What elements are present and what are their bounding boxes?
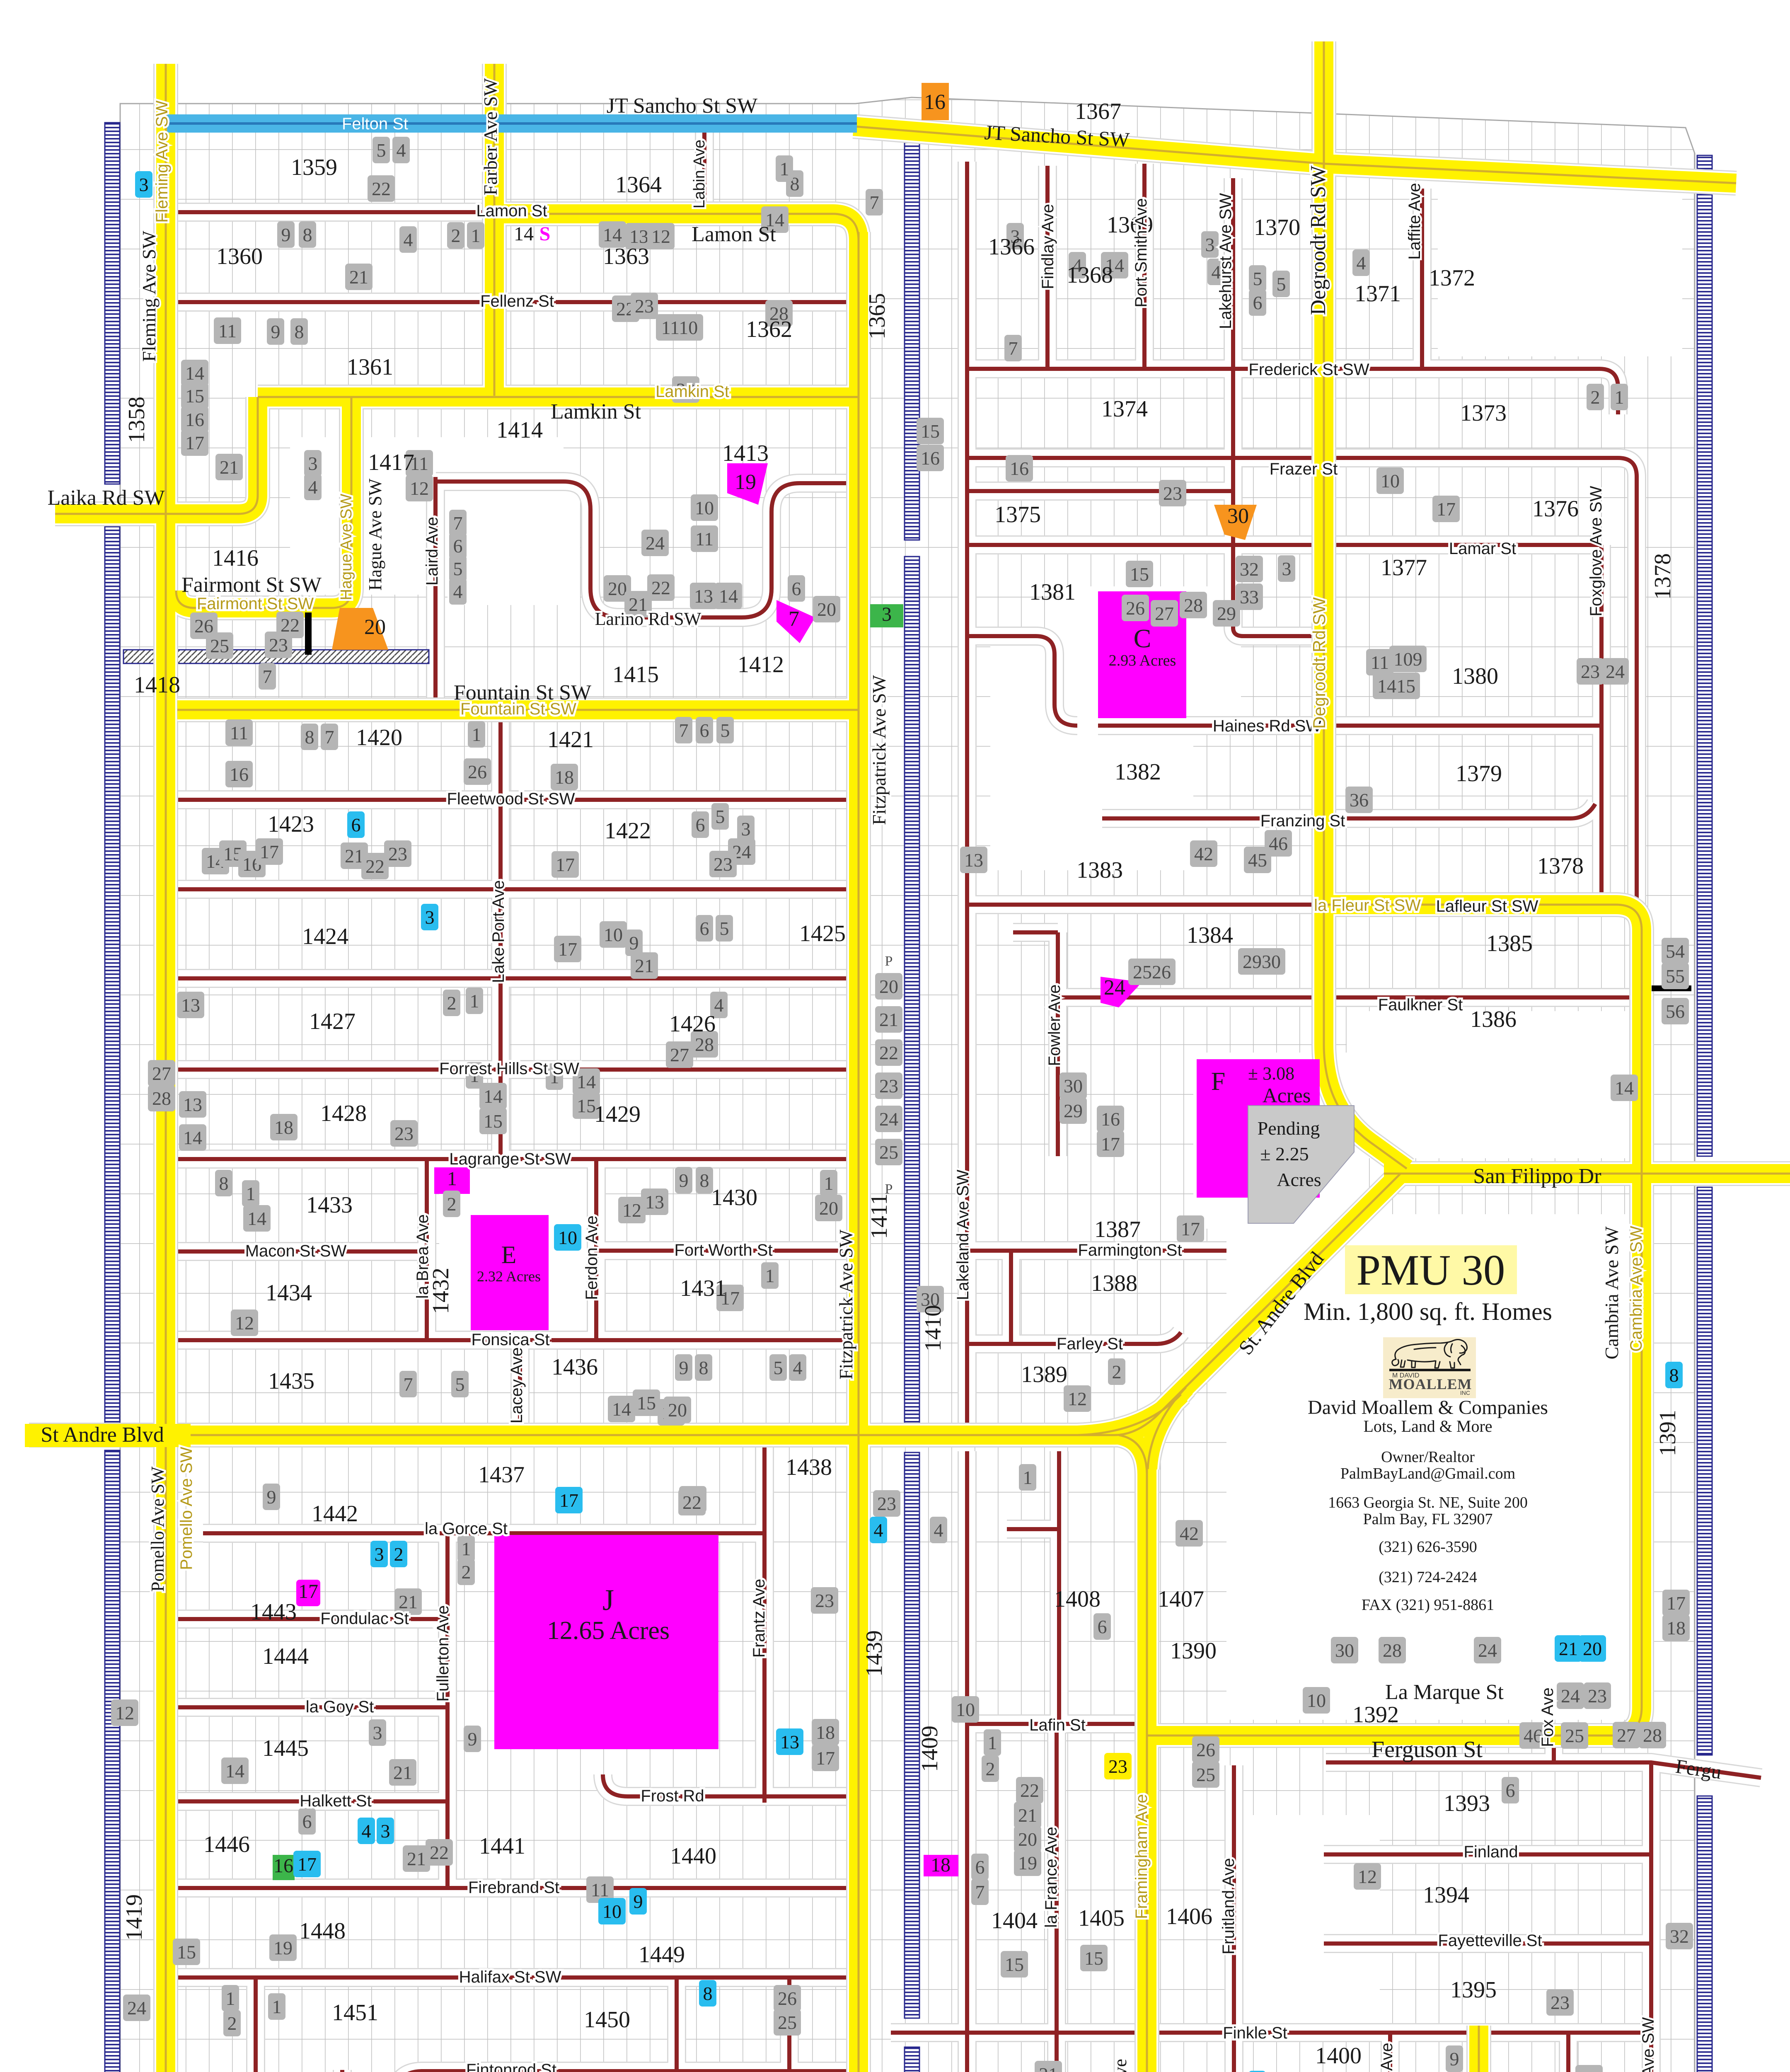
svg-text:2: 2	[1591, 387, 1600, 408]
svg-text:1382: 1382	[1115, 759, 1161, 785]
svg-text:15: 15	[577, 1095, 596, 1116]
svg-text:Fullerton Ave: Fullerton Ave	[434, 1605, 452, 1702]
svg-text:21: 21	[1580, 2068, 1599, 2072]
svg-text:30: 30	[1227, 504, 1249, 528]
svg-text:1437: 1437	[478, 1462, 525, 1488]
svg-text:Fondulac St: Fondulac St	[320, 1610, 409, 1628]
svg-text:6: 6	[975, 1857, 985, 1878]
svg-text:1432: 1432	[428, 1268, 454, 1314]
svg-text:4: 4	[874, 1520, 883, 1541]
svg-text:la Brea Ave: la Brea Ave	[414, 1214, 432, 1299]
svg-text:6: 6	[792, 578, 801, 599]
svg-text:14: 14	[1615, 1077, 1634, 1099]
svg-text:Laird Ave: Laird Ave	[423, 517, 441, 586]
svg-text:1413: 1413	[722, 441, 769, 466]
svg-text:JT Sancho St SW: JT Sancho St SW	[607, 94, 758, 118]
svg-text:12.65 Acres: 12.65 Acres	[547, 1617, 670, 1645]
svg-text:1: 1	[226, 1988, 235, 2009]
svg-text:14: 14	[484, 1086, 503, 1107]
svg-text:11: 11	[1371, 652, 1389, 673]
svg-text:16: 16	[1010, 458, 1029, 479]
svg-text:1391: 1391	[1655, 1410, 1681, 1456]
svg-text:45: 45	[1248, 850, 1267, 871]
svg-text:10: 10	[558, 1227, 577, 1248]
svg-text:1420: 1420	[356, 725, 402, 750]
svg-text:MOALLEM: MOALLEM	[1389, 1376, 1472, 1392]
svg-text:22: 22	[430, 1842, 449, 1863]
svg-text:17: 17	[559, 1490, 578, 1511]
svg-text:1362: 1362	[746, 317, 792, 342]
svg-text:1: 1	[1615, 387, 1624, 408]
svg-text:Fort Worth St: Fort Worth St	[674, 1241, 772, 1259]
svg-text:1364: 1364	[615, 172, 662, 198]
svg-text:1386: 1386	[1470, 1007, 1517, 1032]
svg-text:Fairmont St SW: Fairmont St SW	[197, 595, 314, 613]
svg-text:16: 16	[230, 764, 249, 785]
svg-text:23: 23	[879, 1075, 898, 1097]
svg-text:3: 3	[1205, 234, 1215, 255]
svg-text:1389: 1389	[1021, 1362, 1067, 1387]
svg-text:Toledo Ave SW: Toledo Ave SW	[1639, 2017, 1657, 2072]
svg-text:20: 20	[1583, 1638, 1602, 1659]
svg-text:21: 21	[635, 955, 654, 976]
svg-text:32: 32	[1240, 559, 1259, 580]
svg-text:3: 3	[381, 1820, 390, 1842]
svg-text:1663 Georgia St. NE, Suite 200: 1663 Georgia St. NE, Suite 200	[1328, 1494, 1528, 1511]
svg-text:(321) 626-3590: (321) 626-3590	[1379, 1538, 1477, 1556]
svg-text:12: 12	[410, 478, 429, 499]
svg-text:1381: 1381	[1029, 579, 1076, 605]
svg-text:6: 6	[1098, 1616, 1107, 1637]
svg-text:Lots, Land & More: Lots, Land & More	[1363, 1417, 1492, 1435]
svg-text:9: 9	[1450, 2048, 1459, 2070]
svg-text:9: 9	[679, 1357, 689, 1378]
svg-text:1: 1	[765, 1265, 775, 1286]
svg-text:2.32 Acres: 2.32 Acres	[477, 1268, 541, 1285]
svg-text:1439: 1439	[861, 1630, 887, 1677]
svg-text:22: 22	[365, 856, 385, 877]
svg-text:1: 1	[824, 1173, 834, 1194]
svg-text:24: 24	[879, 1109, 898, 1130]
svg-text:San Filippo Dr: San Filippo Dr	[1473, 1164, 1601, 1188]
svg-text:6: 6	[700, 918, 709, 939]
svg-text:Halifax St SW: Halifax St SW	[459, 1968, 561, 1986]
svg-text:13: 13	[645, 1191, 664, 1213]
svg-text:Lamkin St: Lamkin St	[551, 400, 641, 424]
svg-text:1419: 1419	[121, 1894, 147, 1941]
svg-text:1424: 1424	[302, 924, 348, 949]
svg-text:Frederick St SW: Frederick St SW	[1248, 361, 1369, 379]
svg-text:12: 12	[622, 1200, 641, 1221]
svg-text:Lamon St: Lamon St	[692, 223, 776, 246]
svg-text:17: 17	[185, 432, 204, 453]
svg-text:3: 3	[1282, 558, 1292, 579]
svg-text:1373: 1373	[1460, 400, 1507, 426]
svg-text:1371: 1371	[1355, 281, 1401, 307]
svg-text:Owner/Realtor: Owner/Realtor	[1381, 1448, 1475, 1466]
svg-text:2: 2	[462, 1561, 471, 1583]
svg-text:18: 18	[816, 1722, 835, 1743]
svg-text:1408: 1408	[1054, 1586, 1101, 1612]
svg-text:11: 11	[218, 320, 237, 341]
svg-text:24: 24	[127, 1997, 146, 2019]
svg-text:1: 1	[472, 724, 481, 745]
svg-text:6: 6	[1253, 292, 1263, 313]
svg-text:Hague Ave SW: Hague Ave SW	[365, 478, 385, 591]
svg-text:18: 18	[1667, 1617, 1686, 1639]
svg-text:5: 5	[721, 720, 730, 741]
svg-text:1: 1	[447, 1168, 457, 1190]
svg-text:21: 21	[879, 1009, 898, 1030]
svg-text:Palm Bay, FL 32907: Palm Bay, FL 32907	[1363, 1510, 1493, 1528]
svg-text:23: 23	[815, 1590, 834, 1611]
svg-text:4: 4	[308, 477, 318, 498]
svg-text:1448: 1448	[299, 1918, 346, 1944]
svg-text:1433: 1433	[306, 1192, 353, 1218]
svg-text:Fox Ave: Fox Ave	[1538, 1687, 1557, 1747]
svg-text:Degroodt Rd SW: Degroodt Rd SW	[1306, 165, 1330, 315]
svg-text:2: 2	[986, 1758, 995, 1779]
svg-text:Felton St: Felton St	[342, 115, 408, 133]
svg-text:55: 55	[1666, 966, 1685, 987]
svg-text:2: 2	[1112, 1361, 1122, 1382]
svg-text:1431: 1431	[680, 1276, 726, 1301]
svg-text:10: 10	[1381, 470, 1400, 491]
svg-text:1: 1	[988, 1732, 997, 1753]
svg-text:PMU 30: PMU 30	[1357, 1246, 1505, 1294]
svg-text:3: 3	[425, 907, 435, 928]
svg-text:13: 13	[694, 586, 713, 607]
svg-text:1390: 1390	[1170, 1638, 1217, 1664]
svg-text:S: S	[539, 223, 551, 245]
svg-text:25: 25	[1196, 1764, 1215, 1785]
svg-text:3: 3	[308, 453, 318, 474]
svg-text:1: 1	[471, 225, 481, 246]
svg-text:8: 8	[703, 1983, 713, 2004]
svg-text:1: 1	[246, 1183, 256, 1204]
svg-text:Min. 1,800 sq. ft. Homes: Min. 1,800 sq. ft. Homes	[1304, 1298, 1552, 1325]
svg-text:5: 5	[377, 140, 386, 161]
svg-text:17: 17	[1181, 1218, 1200, 1239]
svg-text:1385: 1385	[1486, 931, 1533, 956]
svg-text:Macon St SW: Macon St SW	[245, 1242, 347, 1260]
svg-text:23: 23	[1581, 661, 1600, 682]
svg-text:23: 23	[635, 295, 654, 317]
svg-text:Lakehurst Ave SW: Lakehurst Ave SW	[1217, 193, 1235, 329]
svg-text:1415: 1415	[612, 662, 659, 687]
svg-text:David Moallem & Companies: David Moallem & Companies	[1308, 1397, 1548, 1418]
svg-text:2: 2	[447, 992, 457, 1014]
svg-text:Cambria Ave SW: Cambria Ave SW	[1627, 1226, 1645, 1352]
svg-text:23: 23	[877, 1493, 896, 1514]
svg-text:18: 18	[555, 767, 574, 788]
svg-text:10: 10	[1307, 1690, 1326, 1711]
svg-text:27: 27	[1155, 603, 1174, 624]
svg-text:21: 21	[1018, 1805, 1037, 1826]
svg-text:25: 25	[1565, 1725, 1584, 1746]
svg-text:Degroodt Rd SW: Degroodt Rd SW	[1309, 597, 1329, 729]
svg-text:1436: 1436	[552, 1354, 598, 1380]
svg-text:26: 26	[778, 1988, 797, 2009]
svg-text:Cambria Ave SW: Cambria Ave SW	[1601, 1226, 1622, 1360]
svg-text:3: 3	[139, 174, 149, 195]
svg-text:14: 14	[719, 586, 738, 607]
svg-text:1404: 1404	[991, 1908, 1038, 1934]
svg-text:Lamkin St: Lamkin St	[656, 382, 729, 401]
svg-text:1363: 1363	[603, 244, 649, 269]
svg-text:15: 15	[1005, 1954, 1024, 1975]
svg-text:16: 16	[273, 1855, 293, 1877]
svg-text:1365: 1365	[864, 293, 890, 339]
svg-text:7: 7	[263, 666, 272, 687]
svg-text:1: 1	[780, 158, 789, 179]
svg-text:1378: 1378	[1537, 853, 1584, 879]
svg-text:Fleming Ave SW: Fleming Ave SW	[138, 230, 160, 362]
svg-text:Halkett St: Halkett St	[300, 1792, 371, 1810]
svg-text:4: 4	[1357, 252, 1366, 274]
svg-text:8: 8	[1669, 1365, 1679, 1386]
svg-text:10: 10	[602, 1901, 622, 1922]
svg-text:Ferguson St: Ferguson St	[1372, 1737, 1483, 1762]
svg-text:la Goy St: la Goy St	[306, 1698, 374, 1716]
svg-text:± 2.25: ± 2.25	[1260, 1143, 1309, 1164]
svg-text:Finland: Finland	[1463, 1843, 1518, 1861]
svg-text:E: E	[501, 1241, 517, 1268]
svg-text:1435: 1435	[268, 1368, 314, 1394]
svg-text:5: 5	[455, 1374, 465, 1395]
svg-text:1374: 1374	[1101, 396, 1148, 422]
svg-text:Farmington St: Farmington St	[1078, 1241, 1182, 1259]
svg-text:20: 20	[668, 1399, 687, 1421]
svg-text:5: 5	[720, 918, 729, 939]
svg-text:5: 5	[1277, 274, 1286, 295]
svg-text:2: 2	[447, 1193, 457, 1215]
svg-text:7: 7	[325, 726, 334, 748]
svg-text:25: 25	[879, 1142, 898, 1163]
svg-text:17: 17	[260, 841, 279, 862]
svg-text:1406: 1406	[1166, 1904, 1212, 1929]
svg-text:6: 6	[1506, 1780, 1515, 1801]
svg-text:12: 12	[115, 1702, 134, 1723]
svg-text:22: 22	[682, 1492, 701, 1513]
svg-text:28: 28	[1184, 595, 1203, 616]
svg-text:1370: 1370	[1254, 215, 1300, 240]
svg-text:Laika Rd SW: Laika Rd SW	[47, 486, 164, 510]
svg-text:2: 2	[227, 2013, 237, 2034]
svg-text:P: P	[885, 1181, 893, 1197]
svg-text:56: 56	[1666, 1001, 1685, 1022]
svg-text:Acres: Acres	[1263, 1084, 1311, 1107]
svg-text:Pending: Pending	[1258, 1118, 1320, 1139]
svg-text:9: 9	[634, 1891, 643, 1912]
svg-text:Fruitland Ave: Fruitland Ave	[1219, 1858, 1238, 1955]
svg-text:23: 23	[714, 854, 733, 875]
svg-text:11: 11	[695, 528, 714, 549]
svg-text:Fayetteville St: Fayetteville St	[1438, 1932, 1542, 1950]
svg-text:1: 1	[1023, 1467, 1033, 1488]
svg-text:7: 7	[975, 1881, 985, 1903]
svg-text:23: 23	[269, 634, 288, 656]
svg-text:Foxglove Ave SW: Foxglove Ave SW	[1587, 486, 1605, 616]
svg-text:Forrest Hills St SW: Forrest Hills St SW	[439, 1060, 579, 1078]
svg-text:18: 18	[931, 1854, 951, 1876]
svg-text:1110: 1110	[661, 317, 698, 338]
svg-text:29: 29	[1064, 1100, 1083, 1121]
svg-text:13: 13	[964, 850, 983, 871]
svg-text:la Gorce St: la Gorce St	[425, 1520, 508, 1538]
svg-text:1425: 1425	[799, 921, 846, 946]
svg-text:Hague Ave SW: Hague Ave SW	[338, 494, 355, 600]
svg-text:1442: 1442	[312, 1501, 358, 1527]
svg-text:Lamon St: Lamon St	[476, 202, 547, 220]
svg-text:Fitzpatrick Ave SW: Fitzpatrick Ave SW	[835, 1229, 856, 1380]
svg-text:Farber Ave SW: Farber Ave SW	[480, 78, 501, 195]
svg-text:11: 11	[591, 1879, 609, 1900]
svg-text:Franzing St: Franzing St	[1260, 812, 1345, 830]
svg-text:8: 8	[305, 726, 314, 748]
svg-text:Laffite Ave: Laffite Ave	[1405, 183, 1424, 259]
svg-text:15: 15	[185, 385, 204, 407]
svg-text:20: 20	[1018, 1829, 1037, 1850]
svg-text:Fountain St SW: Fountain St SW	[460, 700, 576, 718]
svg-text:14: 14	[183, 1127, 202, 1148]
svg-text:5: 5	[716, 806, 725, 827]
svg-text:42: 42	[1180, 1523, 1199, 1544]
svg-text:17: 17	[558, 939, 577, 960]
svg-text:5: 5	[1253, 268, 1263, 289]
svg-text:P: P	[885, 954, 893, 969]
svg-text:15: 15	[921, 421, 940, 442]
svg-text:5: 5	[453, 558, 463, 579]
svg-text:1407: 1407	[1158, 1586, 1204, 1612]
svg-text:1410: 1410	[920, 1305, 946, 1351]
svg-text:23: 23	[388, 843, 407, 864]
svg-text:17: 17	[1437, 499, 1456, 520]
svg-text:7: 7	[789, 607, 799, 631]
svg-text:1440: 1440	[670, 1843, 716, 1869]
svg-text:Findlay Ave: Findlay Ave	[1039, 204, 1057, 289]
svg-text:12: 12	[1068, 1388, 1087, 1409]
svg-text:23: 23	[1588, 1685, 1607, 1706]
svg-text:17: 17	[1667, 1593, 1686, 1614]
svg-text:6: 6	[453, 535, 463, 557]
svg-text:1366: 1366	[988, 234, 1035, 260]
svg-text:1417: 1417	[368, 450, 414, 475]
svg-text:4: 4	[934, 1520, 943, 1541]
svg-text:24: 24	[1104, 976, 1125, 1000]
svg-text:(321) 724-2424: (321) 724-2424	[1379, 1569, 1477, 1586]
svg-text:28: 28	[152, 1088, 171, 1109]
svg-text:7: 7	[870, 192, 879, 213]
svg-text:Fleetwood St SW: Fleetwood St SW	[447, 790, 575, 808]
svg-text:1445: 1445	[262, 1736, 309, 1761]
svg-text:Fonsica St: Fonsica St	[472, 1331, 550, 1349]
svg-text:Lacey Ave: Lacey Ave	[508, 1347, 526, 1423]
svg-text:21: 21	[349, 266, 368, 288]
svg-text:Frantz Ave: Frantz Ave	[750, 1579, 768, 1658]
svg-text:1368: 1368	[1067, 262, 1113, 288]
svg-text:la Fleur St SW: la Fleur St SW	[1314, 896, 1421, 915]
svg-text:13: 13	[183, 1094, 202, 1115]
svg-text:36: 36	[1350, 789, 1369, 811]
svg-text:8: 8	[303, 224, 312, 245]
svg-text:Lafleur St SW: Lafleur St SW	[1436, 897, 1538, 915]
svg-text:19: 19	[1018, 1852, 1037, 1874]
svg-text:1414: 1414	[496, 417, 543, 443]
svg-text:Faulkner St: Faulkner St	[1378, 996, 1463, 1014]
svg-text:28: 28	[1643, 1725, 1662, 1746]
svg-text:1400: 1400	[1315, 2043, 1362, 2069]
svg-text:4: 4	[793, 1357, 803, 1378]
svg-text:9: 9	[468, 1728, 477, 1750]
svg-text:Ferdon Ave: Ferdon Ave	[583, 1215, 601, 1300]
svg-text:21: 21	[1559, 1638, 1578, 1659]
svg-text:1360: 1360	[216, 244, 263, 269]
svg-text:32: 32	[1670, 1926, 1689, 1947]
svg-text:54: 54	[1666, 941, 1685, 962]
svg-text:1384: 1384	[1187, 922, 1233, 948]
svg-text:9: 9	[271, 321, 281, 342]
svg-text:20: 20	[819, 1198, 838, 1219]
svg-text:1393: 1393	[1444, 1791, 1490, 1816]
svg-text:26: 26	[1196, 1739, 1215, 1760]
svg-text:Pomello Ave SW: Pomello Ave SW	[148, 1466, 168, 1592]
svg-text:1379: 1379	[1456, 761, 1502, 787]
svg-text:Fargo Ave: Fargo Ave	[1378, 2043, 1396, 2072]
svg-text:1415: 1415	[1377, 675, 1415, 697]
svg-text:La Marque St: La Marque St	[1385, 1680, 1504, 1704]
svg-text:21: 21	[345, 845, 364, 867]
svg-text:1444: 1444	[262, 1644, 309, 1669]
svg-text:Fellenz St: Fellenz St	[480, 292, 554, 310]
svg-text:22: 22	[372, 178, 391, 199]
svg-text:1361: 1361	[347, 354, 393, 380]
svg-text:F: F	[1211, 1067, 1225, 1096]
svg-text:14: 14	[612, 1399, 631, 1420]
svg-text:3: 3	[375, 1544, 384, 1565]
svg-text:1446: 1446	[203, 1832, 250, 1857]
svg-text:9: 9	[267, 1486, 276, 1508]
svg-text:1367: 1367	[1075, 99, 1121, 124]
svg-text:8: 8	[295, 321, 304, 342]
svg-text:17: 17	[298, 1581, 318, 1602]
svg-text:1423: 1423	[268, 811, 314, 837]
svg-text:8: 8	[700, 1170, 709, 1191]
svg-text:6: 6	[700, 720, 709, 741]
svg-text:22: 22	[879, 1042, 898, 1063]
svg-text:1443: 1443	[250, 1599, 297, 1625]
svg-text:9: 9	[629, 932, 639, 954]
svg-text:17: 17	[816, 1748, 835, 1769]
svg-text:20: 20	[879, 976, 898, 997]
svg-text:6: 6	[351, 814, 361, 835]
svg-text:14: 14	[603, 224, 622, 245]
svg-text:1380: 1380	[1452, 663, 1498, 689]
svg-text:1375: 1375	[994, 502, 1041, 528]
svg-text:Labin Ave: Labin Ave	[691, 140, 708, 208]
svg-text:14: 14	[514, 223, 534, 245]
svg-text:7: 7	[1009, 338, 1018, 359]
svg-text:Fairmont St SW: Fairmont St SW	[181, 573, 322, 597]
svg-text:4: 4	[404, 229, 413, 250]
svg-text:23: 23	[1551, 1992, 1570, 2013]
svg-text:1394: 1394	[1423, 1882, 1469, 1908]
svg-text:19: 19	[735, 470, 756, 494]
svg-text:15: 15	[1084, 1948, 1103, 1969]
svg-text:4: 4	[397, 140, 406, 161]
svg-text:26: 26	[1126, 598, 1145, 619]
svg-text:Lagrange St SW: Lagrange St SW	[449, 1150, 571, 1168]
